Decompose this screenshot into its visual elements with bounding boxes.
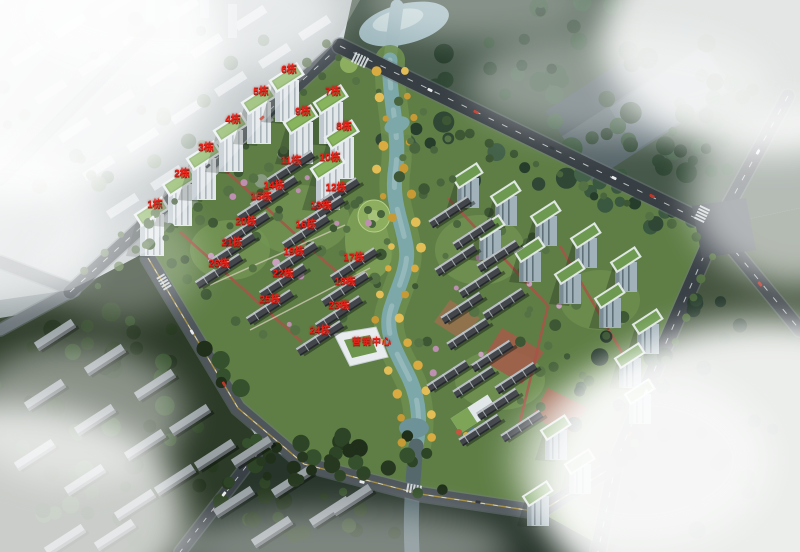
tree (510, 150, 518, 158)
tree (264, 163, 274, 173)
tree (352, 77, 360, 85)
tree (375, 93, 384, 102)
tree (656, 136, 675, 155)
tree (453, 220, 461, 228)
tree (420, 108, 428, 116)
tree (334, 470, 346, 482)
tree (249, 173, 259, 183)
tree (403, 338, 412, 347)
tree (696, 274, 705, 283)
tree (364, 206, 372, 214)
tree (398, 438, 406, 446)
tree (549, 362, 559, 372)
tree (277, 500, 287, 510)
tree (395, 314, 404, 323)
tree (652, 154, 665, 167)
tree (600, 193, 607, 200)
tree (324, 454, 334, 464)
tree (385, 265, 392, 272)
tree (407, 190, 416, 199)
tree (241, 179, 248, 186)
tree (578, 181, 588, 191)
tree (430, 369, 437, 376)
tree (334, 221, 339, 226)
tree (437, 484, 448, 495)
tree (688, 156, 698, 166)
tree (371, 316, 379, 324)
tree (549, 319, 561, 331)
tree (229, 193, 236, 200)
tree (195, 215, 205, 225)
tree (126, 325, 140, 339)
tree (284, 251, 290, 257)
tree (305, 175, 310, 180)
tree (410, 123, 422, 135)
tree (81, 320, 94, 333)
tree (208, 218, 218, 228)
tree (623, 200, 630, 207)
scene-canvas (0, 0, 800, 552)
tree (449, 175, 457, 183)
tree (478, 352, 483, 357)
tree (287, 322, 292, 327)
tree (296, 188, 301, 193)
tree (197, 341, 213, 357)
tree (201, 289, 212, 300)
tree (674, 144, 687, 157)
tree (216, 377, 227, 388)
tree (401, 67, 409, 75)
tree (544, 341, 553, 350)
tree (422, 337, 432, 347)
tree (376, 291, 384, 299)
tree (232, 379, 250, 397)
tree (383, 116, 389, 122)
tree (257, 487, 274, 504)
tree (515, 337, 526, 348)
tree (410, 114, 417, 121)
tree (667, 219, 677, 229)
tree (715, 296, 726, 307)
tree (615, 197, 625, 207)
tree (263, 472, 272, 481)
tree (416, 243, 426, 253)
tree (590, 192, 598, 200)
tree (256, 457, 266, 467)
tree (564, 353, 570, 359)
tree (292, 435, 309, 452)
tree (393, 389, 402, 398)
tree (533, 161, 539, 167)
aerial-render: 1栋2栋3栋4栋5栋6栋7栋8栋9栋10栋11栋12栋13栋14栋15栋16栋1… (0, 0, 800, 552)
tree (381, 460, 396, 475)
tree (365, 220, 372, 227)
tree (384, 238, 391, 245)
tree (394, 171, 405, 182)
tree (166, 323, 178, 335)
tree (709, 253, 716, 260)
tree (427, 410, 436, 419)
tree (155, 354, 172, 371)
tree (591, 348, 609, 366)
tree (437, 178, 445, 186)
cloud (470, 30, 770, 140)
tree (231, 316, 241, 326)
tree (384, 366, 393, 375)
tree (414, 338, 423, 347)
tree (343, 226, 350, 233)
tree (532, 177, 545, 190)
tree (342, 444, 356, 458)
tree (418, 183, 429, 194)
tree (318, 72, 326, 80)
tree (306, 465, 317, 476)
tree (455, 130, 466, 141)
tree (224, 477, 235, 488)
tree (212, 263, 219, 270)
tree (454, 286, 459, 291)
tree (130, 342, 143, 355)
tree (690, 294, 698, 302)
tree (388, 243, 395, 250)
tree (485, 139, 494, 148)
playground-red (456, 429, 462, 435)
tree (290, 325, 300, 335)
tree (295, 475, 305, 485)
tree (226, 222, 233, 229)
tree (465, 129, 475, 139)
tree (394, 97, 403, 106)
tree (486, 154, 494, 162)
tree (430, 146, 438, 154)
tree (399, 448, 415, 464)
tree (602, 332, 610, 340)
tree (401, 291, 409, 299)
tree (427, 433, 436, 442)
tree (442, 116, 452, 126)
tree (335, 54, 342, 61)
tree (519, 162, 530, 173)
tree (259, 330, 268, 339)
tree (411, 217, 421, 227)
tree (339, 250, 345, 256)
tree (231, 240, 241, 250)
tree (300, 89, 307, 96)
tree (557, 171, 563, 177)
tree (212, 351, 230, 369)
tree (412, 488, 423, 499)
tree (412, 283, 418, 289)
tree (692, 232, 702, 242)
tree (192, 479, 206, 493)
tree (442, 253, 448, 259)
tree (579, 372, 587, 380)
tree (397, 414, 405, 422)
tree (404, 93, 411, 100)
tree (372, 66, 382, 76)
tree (297, 452, 308, 463)
tree (434, 44, 454, 64)
tree (421, 448, 432, 459)
tree (524, 311, 531, 318)
tree (411, 265, 419, 273)
tree (372, 165, 381, 174)
tree (645, 212, 654, 221)
tree (320, 492, 329, 501)
tree (556, 168, 577, 189)
tree (377, 210, 385, 218)
tree (407, 138, 414, 145)
tree (339, 488, 347, 496)
tree (399, 154, 406, 161)
tree (351, 200, 360, 209)
cloud (40, 200, 200, 320)
tree (275, 206, 283, 214)
tree (378, 141, 388, 151)
tree (380, 193, 386, 199)
cloud (510, 370, 770, 550)
tree (445, 135, 452, 142)
tree (433, 346, 439, 352)
tree (413, 360, 423, 370)
tree (249, 264, 257, 272)
tree (334, 428, 351, 445)
tree (265, 453, 276, 464)
tree (682, 314, 690, 322)
tree (193, 202, 203, 212)
tree (388, 213, 397, 222)
